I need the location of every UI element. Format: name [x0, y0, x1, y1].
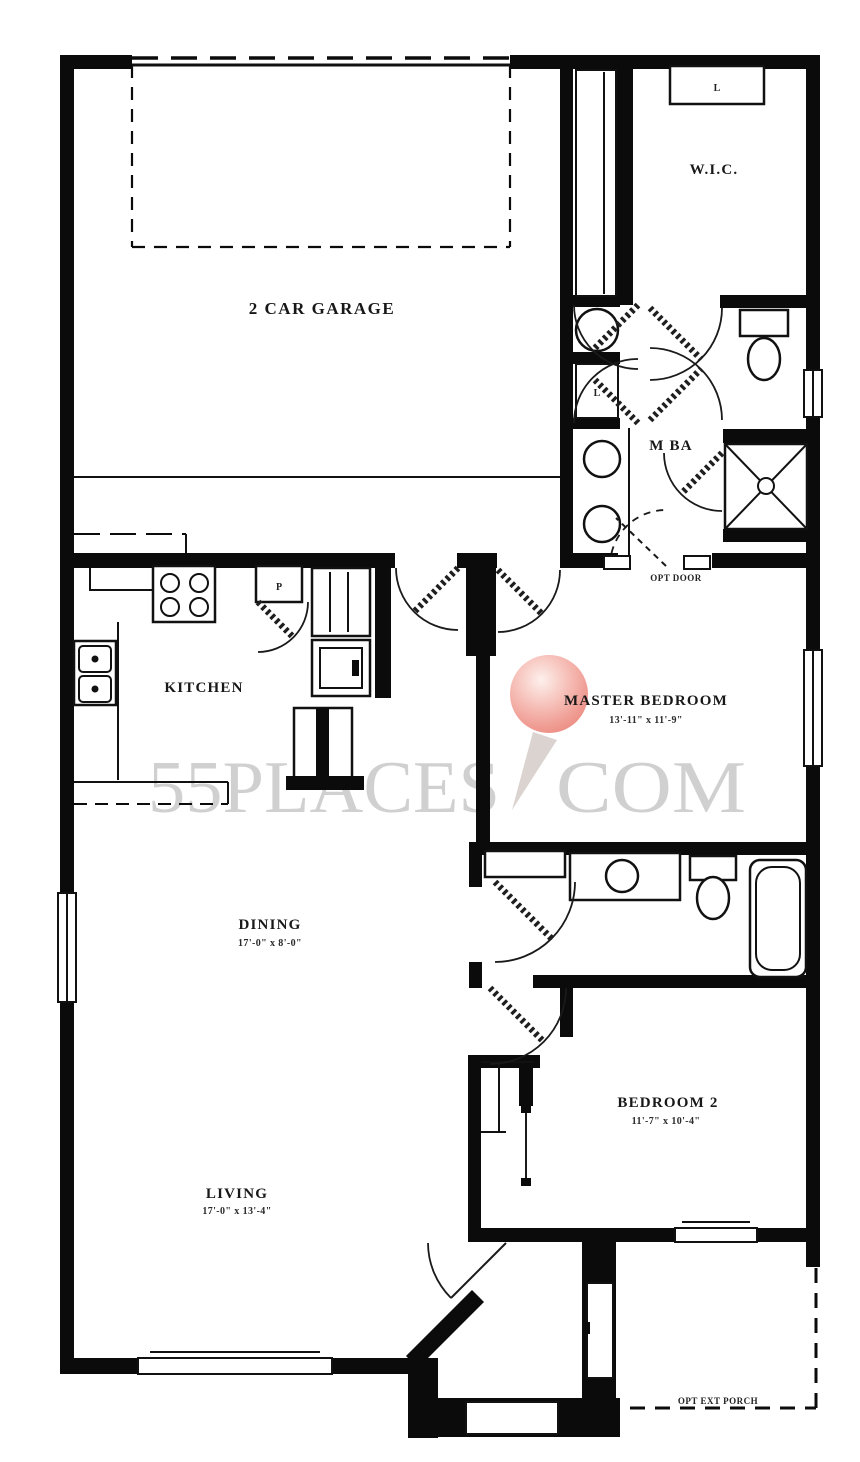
laundry-tub-icon [576, 309, 618, 351]
label-master-bedroom: MASTER BEDROOM [564, 693, 728, 709]
wall-foyer-top [468, 1228, 620, 1242]
wall-foyer-left [408, 1358, 438, 1438]
window-foyer-side [585, 1283, 613, 1378]
dims-dining: 17'-0" x 8'-0" [238, 938, 302, 949]
wall-bed2-bottom-b [757, 1228, 820, 1242]
wall-bath-left-lower [469, 962, 482, 988]
wall-left-upper [60, 55, 74, 893]
shower-icon [725, 444, 807, 529]
label-kitchen: KITCHEN [164, 680, 243, 696]
floorplan-drawing: 55PLACES COM [0, 0, 860, 1462]
floorplan-page: 55PLACES COM [0, 0, 860, 1462]
window-bath-right [804, 370, 822, 417]
dims-living: 17'-0" x 13'-4" [202, 1206, 271, 1217]
wall-master-left [476, 654, 490, 846]
bathtub-icon [750, 860, 806, 977]
label-pantry: P [276, 582, 282, 593]
label-bedroom2: BEDROOM 2 [617, 1095, 718, 1111]
wall-bed2-bottom-a [618, 1228, 676, 1242]
wall-garage-kitchen [60, 553, 395, 568]
label-dining: DINING [238, 917, 301, 933]
bath-linen-shelf [485, 851, 565, 877]
window-dining-left [58, 893, 76, 1002]
window-master-right [804, 650, 822, 766]
label-wic: W.I.C. [690, 162, 739, 178]
wall-top-right [510, 55, 820, 69]
wall-bed2-jamb [560, 975, 573, 1037]
wall-bath-left-upper [469, 855, 482, 887]
dims-bedroom2: 11'-7" x 10'-4" [632, 1116, 701, 1127]
refrigerator-icon [312, 568, 370, 636]
wall-shower-bottom [723, 529, 807, 542]
bath-vanity-icon [570, 853, 680, 900]
wall-kitchen-right [375, 566, 391, 698]
wall-toilet-room-top [720, 295, 818, 308]
utility-chase [576, 70, 616, 296]
wall-wic-left [616, 55, 633, 305]
label-linen: L [594, 388, 601, 399]
wall-oven-icon [312, 640, 370, 696]
entry-stoop [466, 1402, 558, 1434]
wall-toilet-room-bottom [723, 429, 807, 443]
wall-master-top [712, 553, 818, 568]
label-living: LIVING [206, 1186, 268, 1202]
wall-right-3 [806, 766, 820, 1267]
wall-right-1 [806, 55, 820, 370]
label-mba: M BA [649, 438, 693, 454]
watermark-text-right: COM [556, 747, 746, 829]
kitchen-island [286, 708, 364, 790]
wall-left-lower [60, 1002, 74, 1364]
wall-linen-bottom [573, 418, 620, 429]
label-garage: 2 CAR GARAGE [249, 299, 395, 318]
wall-pier [466, 566, 496, 656]
label-opt-door: OPT DOOR [650, 573, 702, 583]
label-opt-ext-porch: OPT EXT PORCH [678, 1396, 758, 1406]
wall-hall-segment [457, 553, 497, 568]
wall-garage-house [560, 55, 573, 568]
dims-master-bedroom: 13'-11" x 11'-9" [609, 715, 683, 726]
label-wic-shelf: L [714, 83, 721, 94]
kitchen-sink-icon [74, 641, 116, 705]
wall-closet-left [468, 1055, 481, 1237]
